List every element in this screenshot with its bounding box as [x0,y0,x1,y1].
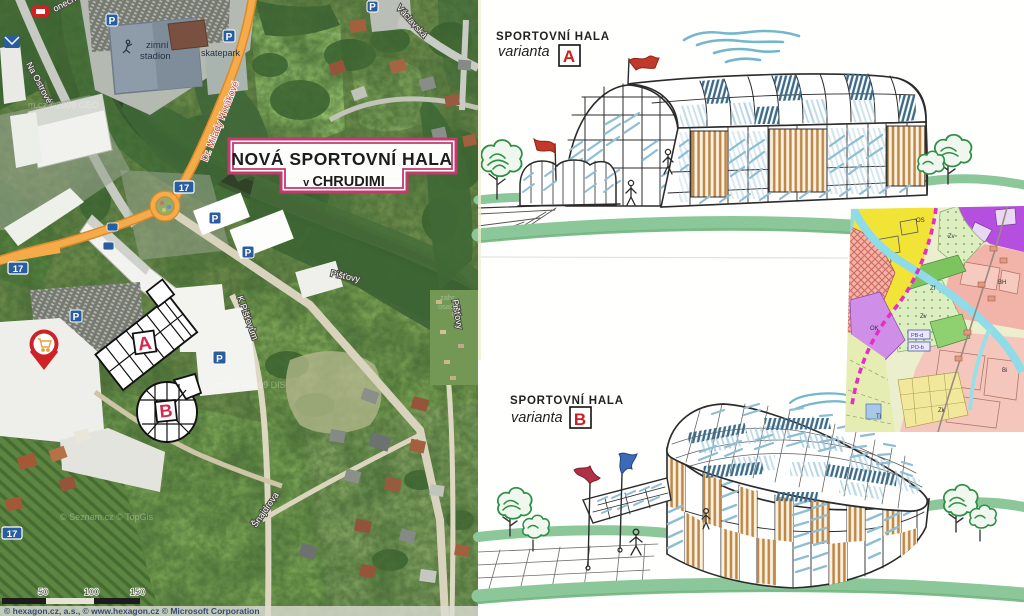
svg-text:150: 150 [130,587,145,597]
svg-text:P: P [216,354,223,365]
svg-text:Zv: Zv [948,234,955,240]
svg-text:Bi: Bi [1002,368,1007,374]
svg-text:osada: osada [438,302,459,311]
svg-text:P: P [226,32,233,43]
svg-text:B: B [158,400,173,421]
svg-text:Zk: Zk [938,408,946,414]
svg-text:BH: BH [998,280,1006,286]
svg-text:varianta: varianta [511,410,563,426]
svg-text:Ti: Ti [876,414,881,420]
svg-text:P: P [212,214,219,225]
svg-text:zahr.: zahr. [440,293,456,302]
svg-text:17: 17 [179,183,190,194]
svg-text:SPORTOVNÍ HALA: SPORTOVNÍ HALA [496,30,610,43]
svg-text:NOVÁ SPORTOVNÍ HALA: NOVÁ SPORTOVNÍ HALA [231,148,452,169]
svg-text:m.cz ©2009 GEO: m.cz ©2009 GEO [28,100,99,110]
svg-text:B: B [574,410,586,429]
svg-text:SPORTOVNÍ HALA: SPORTOVNÍ HALA [510,394,624,407]
svg-text:stadion: stadion [140,51,171,62]
svg-text:zimní: zimní [146,40,169,51]
svg-text:A: A [563,47,575,66]
svg-text:17: 17 [13,264,24,275]
svg-text:PB-d: PB-d [911,333,923,339]
svg-text:P: P [369,2,376,13]
svg-text:OK: OK [870,326,879,332]
svg-text:v CHRUDIMI: v CHRUDIMI [303,174,385,190]
svg-text:P: P [73,312,80,323]
svg-text:Zf: Zf [930,286,936,292]
svg-text:P: P [245,248,252,259]
svg-text:© hexagon.cz, a.s., © www.hexa: © hexagon.cz, a.s., © www.hexagon.cz © M… [4,606,260,616]
svg-text:am.cz ©2009 DIS: am.cz ©2009 DIS [215,380,286,390]
svg-text:PO-b: PO-b [911,345,924,351]
svg-text:OS: OS [916,218,925,224]
svg-text:P: P [109,16,116,27]
svg-text:100: 100 [84,587,99,597]
svg-text:skatepark: skatepark [201,48,241,58]
svg-text:50: 50 [38,587,48,597]
svg-text:Zv: Zv [920,314,927,320]
svg-text:© Seznam.cz © TopGis: © Seznam.cz © TopGis [60,512,154,522]
svg-text:17: 17 [7,529,18,540]
svg-text:varianta: varianta [498,44,550,60]
